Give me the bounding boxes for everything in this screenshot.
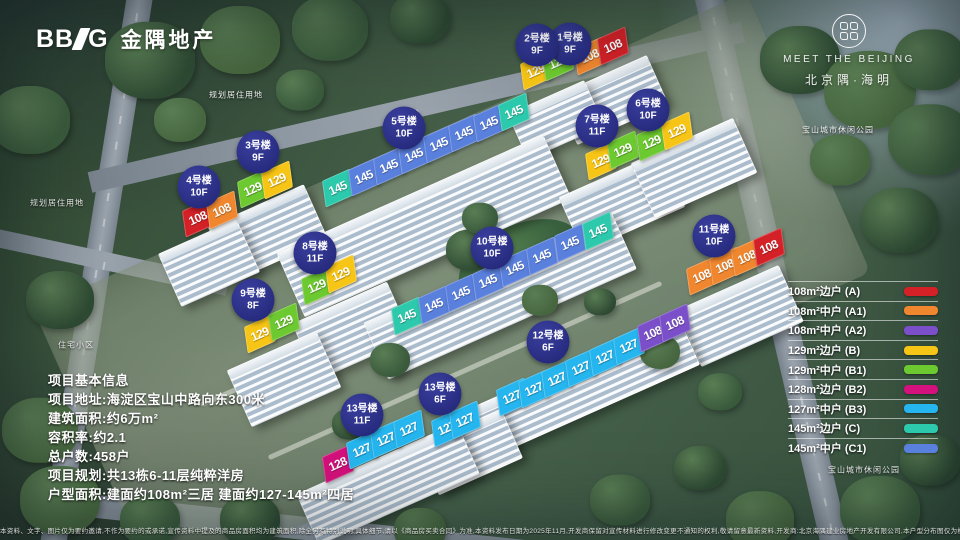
legend-color-swatch [904,326,938,335]
building-number-badge: 5号楼10F [383,107,426,150]
building-number-badge: 11号楼10F [693,215,736,258]
unit-area-value: 145 [396,306,419,326]
brand-project: MEET THE BEIJING 北京隅·海明 [764,14,934,88]
legend-color-swatch [904,365,938,374]
building-name: 9号楼 [240,289,266,301]
unit-area-value: 129 [666,121,689,141]
tree [674,446,726,490]
bbmg-letters-bb: BB [36,25,74,54]
legend-color-swatch [904,385,938,394]
legend-color-swatch [904,306,938,315]
unit-area-value: 129 [249,324,272,344]
brand-cn-name: 金隅地产 [121,24,217,54]
unit-area-value: 127 [618,336,641,356]
building-name: 10号楼 [476,237,507,249]
building-floors: 9F [252,153,264,164]
building-name: 2号楼 [524,34,550,46]
map-area-label: 宝山城市休闲公园 [802,125,874,136]
tree [0,86,70,154]
unit-area-value: 129 [242,179,265,199]
unit-area-value: 108 [187,208,210,228]
unit-type-legend: 108m²边户 (A)108m²中户 (A1)108m²中户 (A2)129m²… [788,281,938,457]
tree [276,70,324,111]
unit-area-value: 129 [641,132,664,152]
building-floors: 10F [395,129,412,140]
masterplan-canvas: 1081081291291291291081081451451451451451… [0,0,960,540]
building-number-badge: 3号楼9F [237,131,280,174]
building-name: 5号楼 [391,117,417,129]
legend-label: 108m²中户 (A1) [788,303,866,319]
legend-row: 108m²中户 (A2) [788,320,938,340]
disclaimer-text: 本资料、文字、图片仅为要约邀请,不作为要约的或承诺,宣传资料中提及的商品房面积均… [0,525,960,535]
unit-area-value: 145 [503,102,526,122]
unit-area-value: 145 [353,167,376,187]
building-floors: 6F [434,395,446,406]
unit-area-value: 145 [559,233,582,253]
unit-area-value: 129 [330,264,353,284]
building-floors: 10F [190,188,207,199]
legend-color-swatch [904,404,938,413]
unit-area-value: 127 [454,410,477,430]
unit-area-value: 145 [428,134,451,154]
building-number-badge: 2号楼9F [516,24,559,67]
project-info-line: 容积率:约2.1 [48,428,354,447]
tree [292,0,368,60]
legend-label: 129m²中户 (B1) [788,362,866,378]
project-info-line: 建筑面积:约6万m² [48,409,354,428]
project-info-line: 总户数:458户 [48,447,354,466]
legend-color-swatch [904,444,938,453]
building-floors: 9F [564,45,576,56]
legend-row: 108m²中户 (A1) [788,301,938,321]
project-slogan-en: MEET THE BEIJING [783,54,915,65]
building-floors: 11F [307,254,324,265]
project-info-panel: 项目基本信息项目地址:海淀区宝山中路向东300米建筑面积:约6万m²容积率:约2… [48,371,354,504]
tree [584,288,616,315]
unit-area-value: 108 [211,200,234,220]
brand-emblem-icon [832,14,866,48]
legend-row: 108m²边户 (A) [788,281,938,301]
building-number-badge: 7号楼11F [576,105,619,148]
project-name-cn: 北京隅·海明 [805,71,893,88]
unit-area-value: 145 [378,156,401,176]
bbmg-letter-g: G [88,25,108,54]
tree [154,98,206,142]
unit-area-value: 129 [306,276,329,296]
legend-row: 129m²中户 (B1) [788,359,938,379]
map-area-label: 宝山城市休闲公园 [828,465,900,476]
project-info-line: 项目基本信息 [48,371,354,390]
unit-area-value: 145 [477,271,500,291]
building-floors: 9F [531,46,543,57]
unit-area-value: 108 [758,237,781,257]
legend-row: 127m²中户 (B3) [788,399,938,419]
building-name: 13号楼 [424,383,455,395]
building-name: 7号楼 [584,115,610,127]
building-floors: 10F [639,111,656,122]
project-info-line: 项目规划:共13栋6-11层纯粹洋房 [48,466,354,485]
tree [26,271,94,329]
unit-area-value: 129 [273,312,296,332]
bbmg-logo: BBG [36,25,109,54]
tree [888,104,960,175]
unit-area-value: 145 [478,113,501,133]
unit-area-value: 127 [546,369,569,389]
legend-label: 127m²中户 (B3) [788,401,866,417]
legend-row: 128m²边户 (B2) [788,379,938,399]
building-floors: 11F [354,416,371,427]
building-floors: 10F [483,249,500,260]
legend-label: 145m²中户 (C1) [788,440,866,456]
building-number-badge: 6号楼10F [627,89,670,132]
project-info-line: 户型面积:建面约108m²三居 建面约127-145m²四居 [48,485,354,504]
legend-label: 108m²边户 (A) [788,283,860,299]
building-floors: 10F [705,237,722,248]
building-name: 12号楼 [532,331,563,343]
building-floors: 8F [247,301,259,312]
building-number-badge: 8号楼11F [294,232,337,275]
building-name: 3号楼 [245,141,271,153]
building-floors: 11F [589,127,606,138]
unit-area-value: 108 [602,36,625,56]
unit-area-value: 145 [531,246,554,266]
legend-row: 129m²边户 (B) [788,340,938,360]
project-info-line: 项目地址:海淀区宝山中路向东300米 [48,390,354,409]
tree [370,343,410,377]
legend-color-swatch [904,424,938,433]
unit-area-value: 145 [453,123,476,143]
tree [394,508,446,540]
tree [590,475,650,526]
building-number-badge: 9号楼8F [232,279,275,322]
building-name: 4号楼 [186,176,212,188]
building-name: 8号楼 [302,242,328,254]
legend-color-swatch [904,287,938,296]
tree [390,0,450,44]
unit-area-value: 129 [612,140,635,160]
unit-area-value: 127 [398,419,421,439]
legend-label: 108m²中户 (A2) [788,322,866,338]
unit-area-value: 145 [327,178,350,198]
unit-area-value: 145 [587,221,610,241]
building-name: 1号楼 [557,33,583,45]
legend-label: 129m²边户 (B) [788,342,860,358]
legend-label: 145m²边户 (C) [788,420,860,436]
unit-area-value: 108 [664,313,687,333]
building-name: 6号楼 [635,99,661,111]
legend-label: 128m²边户 (B2) [788,381,866,397]
unit-area-value: 145 [423,295,446,315]
legend-row: 145m²边户 (C) [788,418,938,438]
map-area-label: 规划居住用地 [209,90,263,101]
unit-area-value: 127 [570,358,593,378]
tree [862,188,938,253]
building-floors: 6F [542,343,554,354]
unit-area-value: 127 [594,347,617,367]
building-name: 11号楼 [699,225,730,237]
tree [698,373,742,410]
unit-area-value: 145 [450,283,473,303]
legend-color-swatch [904,346,938,355]
unit-area-value: 129 [266,170,289,190]
building-number-badge: 13号楼6F [419,373,462,416]
building-number-badge: 4号楼10F [178,166,221,209]
tree [810,135,870,186]
tree [522,285,558,316]
legend-row: 145m²中户 (C1) [788,438,938,458]
building-number-badge: 10号楼10F [471,227,514,270]
brand-bbmg: BBG 金隅地产 [36,24,217,54]
building-number-badge: 12号楼6F [527,321,570,364]
map-area-label: 规划居住用地 [30,198,84,209]
map-area-label: 住宅小区 [58,340,94,351]
